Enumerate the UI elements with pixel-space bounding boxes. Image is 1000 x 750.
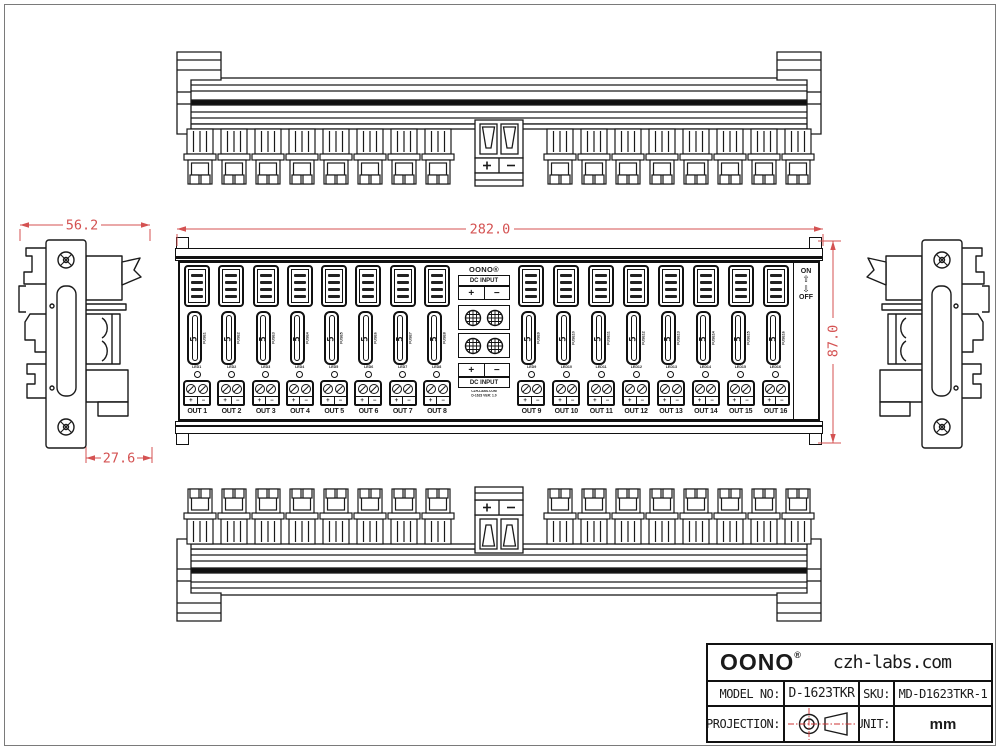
output-channel: 5 FUSE2 LED2 + − [214, 263, 248, 419]
module-body: 5 FUSE1 LED1 + − [178, 261, 820, 421]
output-channel: 5 FUSE11 LED11 + − [584, 263, 619, 419]
screw-terminal[interactable]: + − [252, 380, 280, 406]
fuse-rating: 5 [559, 330, 569, 349]
output-channel: 5 FUSE4 LED4 + − [283, 263, 317, 419]
plus-mark: + [589, 397, 601, 404]
led-label: LED4 [295, 366, 304, 369]
out-label: OUT 14 [694, 408, 717, 415]
fuse-holder[interactable]: 5 FUSE9 [519, 311, 543, 365]
terminal-screws [185, 382, 209, 396]
crosshead-screw-icon [464, 337, 482, 355]
screw-terminal[interactable]: + − [517, 380, 545, 406]
led-indicator [563, 371, 570, 378]
screw-icon[interactable] [741, 384, 751, 394]
led-indicator [228, 371, 235, 378]
terminal-housing [658, 265, 684, 307]
terminal-housing [355, 265, 381, 307]
fuse-rating: 5 [524, 330, 534, 349]
title-block-projection-row: PROJECTION: UNIT: mm [708, 707, 991, 741]
terminal-screws [254, 382, 278, 396]
fuse-rating: 5 [224, 330, 234, 349]
terminal-screws [764, 382, 788, 396]
out-label: OUT 8 [427, 408, 447, 415]
led-label: LED3 [261, 366, 270, 369]
led-label: LED13 [665, 366, 676, 369]
polarity-marks: + − [589, 396, 613, 404]
screw-icon[interactable] [602, 384, 612, 394]
led-label: LED16 [770, 366, 781, 369]
screw-icon[interactable] [637, 384, 647, 394]
terminal-housing [553, 265, 579, 307]
output-channel: 5 FUSE6 LED6 + − [351, 263, 385, 419]
output-channel: 5 FUSE8 LED8 + − [420, 263, 454, 419]
top-view [175, 44, 823, 192]
led-indicator [702, 371, 709, 378]
output-channel: 5 FUSE10 LED10 + − [549, 263, 584, 419]
fuse-holder[interactable]: 5 FUSE12 [624, 311, 648, 365]
out-label: OUT 3 [256, 408, 276, 415]
fuse-holder[interactable]: 5 FUSE2 [219, 311, 243, 365]
fuse-holder[interactable]: 5 FUSE8 [425, 311, 449, 365]
minus-mark: − [740, 397, 753, 404]
fuse-holder[interactable]: 5 FUSE14 [694, 311, 718, 365]
output-channel: 5 FUSE16 LED16 + − [758, 263, 793, 419]
fuse-label: FUSE8 [443, 332, 447, 344]
led-label: LED6 [364, 366, 373, 369]
screw-icon[interactable] [426, 384, 436, 394]
screw-icon[interactable] [438, 384, 448, 394]
screw-icon[interactable] [369, 384, 379, 394]
screw-icon[interactable] [730, 384, 740, 394]
title-block: OONO® czh-labs.com MODEL NO: D-1623TKR S… [706, 643, 993, 743]
fuse-rating: 5 [698, 330, 708, 349]
terminal-slots [557, 269, 575, 303]
model-value: D-1623TKR [785, 682, 860, 705]
plus-mark: + [624, 397, 636, 404]
polarity-marks: + − [624, 396, 648, 404]
polarity-marks: + − [356, 396, 380, 404]
unit-value: mm [895, 707, 991, 741]
terminal-housing [623, 265, 649, 307]
dc-input-label-bottom: DC INPUT [458, 377, 510, 388]
led-label: LED1 [193, 366, 202, 369]
input-screw-pair[interactable] [458, 305, 510, 330]
led-label: LED9 [527, 366, 536, 369]
fuse-label: FUSE4 [306, 332, 310, 344]
out-label: OUT 10 [555, 408, 578, 415]
polarity-marks: + − [254, 396, 278, 404]
led-label: LED8 [432, 366, 441, 369]
plus-mark: + [425, 397, 437, 404]
dc-input-section: OONO® DC INPUT + − + − DC IN [454, 263, 514, 419]
screw-icon[interactable] [672, 384, 682, 394]
plus-mark: + [356, 397, 368, 404]
led-indicator [331, 371, 338, 378]
onoff-marking: ON ⇧ ⇩ OFF [793, 263, 818, 419]
led-label: LED14 [700, 366, 711, 369]
screw-terminal[interactable]: + − [622, 380, 650, 406]
plus-mark: + [729, 397, 741, 404]
fuse-label: FUSE16 [782, 331, 786, 345]
terminal-housing [728, 265, 754, 307]
fuse-label: FUSE6 [375, 332, 379, 344]
fuse-rating: 5 [663, 330, 673, 349]
terminal-screws [322, 382, 346, 396]
terminal-slots [222, 269, 240, 303]
output-channel: 5 FUSE14 LED14 + − [688, 263, 723, 419]
led-label: LED7 [398, 366, 407, 369]
plus-mark: + [185, 397, 197, 404]
minus-mark: − [334, 397, 347, 404]
terminal-screws [425, 382, 449, 396]
minus-mark: − [231, 397, 244, 404]
output-channel: 5 FUSE5 LED5 + − [317, 263, 351, 419]
bottom-view [175, 481, 823, 629]
brand-logo: OONO® [469, 265, 499, 275]
fuse-label: FUSE13 [677, 331, 681, 345]
polarity-marks: + − [425, 396, 449, 404]
din-rail-bottom [175, 421, 823, 434]
out-label: OUT 16 [764, 408, 787, 415]
terminal-screws [659, 382, 683, 396]
fuse-holder[interactable]: 5 FUSE13 [659, 311, 683, 365]
website-text: czh-labs.com [833, 652, 951, 673]
minus-mark: − [436, 397, 449, 404]
terminal-slots [732, 269, 750, 303]
terminal-housing [253, 265, 279, 307]
screw-icon[interactable] [521, 384, 531, 394]
right-side-view [854, 228, 994, 460]
terminal-screws [219, 382, 243, 396]
output-channels-left: 5 FUSE1 LED1 + − [180, 263, 454, 419]
fuse-label: FUSE10 [573, 331, 577, 345]
fuse-label: FUSE11 [607, 331, 611, 344]
fuse-holder[interactable]: 5 FUSE5 [322, 311, 346, 365]
led-label: LED11 [596, 366, 607, 369]
led-label: LED5 [330, 366, 339, 369]
plus-mark: + [519, 397, 531, 404]
out-label: OUT 1 [187, 408, 207, 415]
minus-mark: − [636, 397, 649, 404]
fuse-holder[interactable]: 5 FUSE7 [391, 311, 415, 365]
minus-mark: − [197, 397, 210, 404]
plus-symbol: + [459, 287, 484, 299]
fuse-rating: 5 [327, 330, 337, 349]
sku-value: MD-D1623TKR-1 [895, 682, 991, 705]
fuse-holder[interactable]: 5 FUSE6 [356, 311, 380, 365]
polarity-marks: + − [729, 396, 753, 404]
terminal-slots [359, 269, 377, 303]
out-label: OUT 6 [359, 408, 379, 415]
fuse-label: FUSE3 [272, 332, 276, 344]
terminal-slots [767, 269, 785, 303]
fuse-rating: 5 [768, 330, 778, 349]
plus-mark: + [322, 397, 334, 404]
minus-mark: − [368, 397, 381, 404]
screw-icon[interactable] [567, 384, 577, 394]
fuse-label: FUSE9 [538, 332, 542, 344]
screw-icon[interactable] [765, 384, 775, 394]
fuse-label: FUSE2 [238, 332, 242, 344]
fuse-label: FUSE12 [642, 331, 646, 345]
led-indicator [528, 371, 535, 378]
terminal-slots [662, 269, 680, 303]
polarity-marks: + − [288, 396, 312, 404]
screw-icon[interactable] [221, 384, 231, 394]
terminal-screws [694, 382, 718, 396]
model-label: MODEL NO: [708, 682, 785, 705]
out-label: OUT 9 [522, 408, 542, 415]
unit-label: UNIT: [860, 707, 895, 741]
led-indicator [598, 371, 605, 378]
title-block-logo-row: OONO® czh-labs.com [708, 645, 991, 682]
terminal-slots [257, 269, 275, 303]
output-channel: 5 FUSE1 LED1 + − [180, 263, 214, 419]
screw-terminal[interactable]: + − [286, 380, 314, 406]
led-indicator [772, 371, 779, 378]
minus-mark: − [265, 397, 278, 404]
terminal-screws [624, 382, 648, 396]
screw-terminal[interactable]: + − [692, 380, 720, 406]
polarity-marks: + − [185, 396, 209, 404]
led-indicator [633, 371, 640, 378]
led-indicator [296, 371, 303, 378]
fuse-rating: 5 [190, 330, 200, 349]
output-channel: 5 FUSE12 LED12 + − [619, 263, 654, 419]
projection-label: PROJECTION: [708, 707, 785, 741]
dc-input-label-top: DC INPUT [458, 275, 510, 286]
screw-icon[interactable] [335, 384, 345, 394]
fuse-holder[interactable]: 5 FUSE16 [764, 311, 788, 365]
terminal-housing [763, 265, 789, 307]
fuse-holder[interactable]: 5 FUSE1 [185, 311, 209, 365]
first-angle-projection-icon [787, 707, 857, 741]
screw-icon[interactable] [255, 384, 265, 394]
terminal-housing [390, 265, 416, 307]
fuse-label: FUSE15 [747, 331, 751, 345]
led-label: LED12 [630, 366, 641, 369]
screw-terminal[interactable]: + − [423, 380, 451, 406]
fuse-rating: 5 [292, 330, 302, 349]
terminal-housing [693, 265, 719, 307]
screw-terminal[interactable]: + − [217, 380, 245, 406]
screw-icon[interactable] [186, 384, 196, 394]
led-indicator [365, 371, 372, 378]
screw-terminal[interactable]: + − [389, 380, 417, 406]
plus-mark: + [659, 397, 671, 404]
crosshead-screw-icon [486, 309, 504, 327]
terminal-slots [428, 269, 446, 303]
screw-icon[interactable] [392, 384, 402, 394]
terminal-screws [391, 382, 415, 396]
screw-terminal[interactable]: + − [657, 380, 685, 406]
out-label: OUT 11 [590, 408, 613, 415]
fuse-label: FUSE1 [203, 332, 207, 344]
out-label: OUT 2 [222, 408, 242, 415]
output-channels-right: 5 FUSE9 LED9 + − [514, 263, 793, 419]
plus-symbol: + [459, 364, 484, 376]
led-indicator [667, 371, 674, 378]
fuse-label: FUSE5 [340, 332, 344, 344]
fuse-holder[interactable]: 5 FUSE11 [589, 311, 613, 365]
led-label: LED15 [735, 366, 746, 369]
minus-mark: − [299, 397, 312, 404]
polarity-marks: + − [659, 396, 683, 404]
screw-terminal[interactable]: + − [587, 380, 615, 406]
crosshead-screw-icon [486, 337, 504, 355]
fuse-rating: 5 [395, 330, 405, 349]
output-channel: 5 FUSE7 LED7 + − [386, 263, 420, 419]
output-channel: 5 FUSE3 LED3 + − [249, 263, 283, 419]
minus-symbol: − [484, 287, 510, 299]
polarity-marks: + − [519, 396, 543, 404]
screw-terminal[interactable]: + − [183, 380, 211, 406]
polarity-marks: + − [554, 396, 578, 404]
crosshead-screw-icon [464, 309, 482, 327]
polarity-marks: + − [391, 396, 415, 404]
fuse-holder[interactable]: 5 FUSE4 [288, 311, 312, 365]
terminal-housing [518, 265, 544, 307]
led-indicator [399, 371, 406, 378]
terminal-slots [394, 269, 412, 303]
output-channel: 5 FUSE15 LED15 + − [723, 263, 758, 419]
screw-icon[interactable] [266, 384, 276, 394]
screw-icon[interactable] [323, 384, 333, 394]
polarity-marks: + − [694, 396, 718, 404]
minus-mark: − [566, 397, 579, 404]
screw-icon[interactable] [301, 384, 311, 394]
projection-symbol [785, 707, 860, 741]
dc-input-polarity-bottom: + − [458, 363, 510, 377]
screw-terminal[interactable]: + − [762, 380, 790, 406]
sku-label: SKU: [860, 682, 895, 705]
screw-icon[interactable] [198, 384, 208, 394]
screw-icon[interactable] [403, 384, 413, 394]
fuse-label: FUSE14 [712, 331, 716, 345]
terminal-slots [627, 269, 645, 303]
led-label: LED2 [227, 366, 236, 369]
screw-icon[interactable] [706, 384, 716, 394]
drawing-sheet: 5 FUSE1 LED1 + − [0, 0, 1000, 750]
terminal-screws [589, 382, 613, 396]
plus-mark: + [219, 397, 231, 404]
terminal-housing [287, 265, 313, 307]
off-label: OFF [799, 294, 813, 301]
terminal-slots [522, 269, 540, 303]
plus-mark: + [254, 397, 266, 404]
minus-mark: − [775, 397, 788, 404]
out-label: OUT 12 [624, 408, 647, 415]
screw-icon[interactable] [695, 384, 705, 394]
polarity-marks: + − [764, 396, 788, 404]
brand-logo: OONO [720, 649, 794, 676]
polarity-marks: + − [322, 396, 346, 404]
screw-icon[interactable] [625, 384, 635, 394]
fuse-rating: 5 [258, 330, 268, 349]
screw-icon[interactable] [591, 384, 601, 394]
out-label: OUT 7 [393, 408, 413, 415]
fuse-label: FUSE7 [409, 332, 413, 344]
terminal-screws [554, 382, 578, 396]
led-indicator [433, 371, 440, 378]
terminal-slots [697, 269, 715, 303]
screw-terminal[interactable]: + − [552, 380, 580, 406]
out-label: OUT 15 [729, 408, 752, 415]
fuse-holder[interactable]: 5 FUSE3 [254, 311, 278, 365]
minus-mark: − [531, 397, 544, 404]
screw-terminal[interactable]: + − [354, 380, 382, 406]
screw-icon[interactable] [556, 384, 566, 394]
minus-mark: − [601, 397, 614, 404]
left-side-view [14, 228, 154, 460]
registered-mark: ® [794, 650, 801, 660]
screw-icon[interactable] [289, 384, 299, 394]
terminal-housing [424, 265, 450, 307]
terminal-slots [188, 269, 206, 303]
minus-mark: − [670, 397, 683, 404]
led-indicator [194, 371, 201, 378]
led-indicator [262, 371, 269, 378]
screw-terminal[interactable]: + − [320, 380, 348, 406]
terminal-screws [356, 382, 380, 396]
out-label: OUT 5 [324, 408, 344, 415]
fuse-rating: 5 [733, 330, 743, 349]
terminal-screws [288, 382, 312, 396]
terminal-slots [592, 269, 610, 303]
minus-mark: − [705, 397, 718, 404]
polarity-marks: + − [219, 396, 243, 404]
screw-icon[interactable] [776, 384, 786, 394]
dc-input-polarity-top: + − [458, 286, 510, 300]
fuse-rating: 5 [429, 330, 439, 349]
screw-icon[interactable] [232, 384, 242, 394]
plus-mark: + [764, 397, 776, 404]
screw-icon[interactable] [660, 384, 670, 394]
fuse-holder[interactable]: 5 FUSE15 [729, 311, 753, 365]
fuse-holder[interactable]: 5 FUSE10 [554, 311, 578, 365]
front-view: 5 FUSE1 LED1 + − [175, 236, 823, 446]
terminal-housing [184, 265, 210, 307]
plus-mark: + [694, 397, 706, 404]
fuse-rating: 5 [594, 330, 604, 349]
plus-mark: + [554, 397, 566, 404]
title-block-model-row: MODEL NO: D-1623TKR SKU: MD-D1623TKR-1 [708, 682, 991, 707]
output-channel: 5 FUSE9 LED9 + − [514, 263, 549, 419]
fuse-rating: 5 [361, 330, 371, 349]
terminal-housing [218, 265, 244, 307]
minus-mark: − [402, 397, 415, 404]
terminal-screws [729, 382, 753, 396]
plus-mark: + [391, 397, 403, 404]
terminal-housing [588, 265, 614, 307]
led-label: LED10 [561, 366, 572, 369]
minus-symbol: − [484, 364, 510, 376]
plus-mark: + [288, 397, 300, 404]
screw-icon[interactable] [358, 384, 368, 394]
out-label: OUT 13 [659, 408, 682, 415]
terminal-housing [321, 265, 347, 307]
din-rail-top [175, 248, 823, 261]
led-indicator [737, 371, 744, 378]
terminal-slots [291, 269, 309, 303]
center-note: CZH-LABS.COM D-1623 VER: 1.0 [458, 390, 511, 398]
out-label: OUT 4 [290, 408, 310, 415]
screw-icon[interactable] [532, 384, 542, 394]
screw-terminal[interactable]: + − [727, 380, 755, 406]
terminal-screws [519, 382, 543, 396]
input-screw-pair[interactable] [458, 333, 510, 358]
down-arrow-icon: ⇩ [802, 285, 810, 294]
